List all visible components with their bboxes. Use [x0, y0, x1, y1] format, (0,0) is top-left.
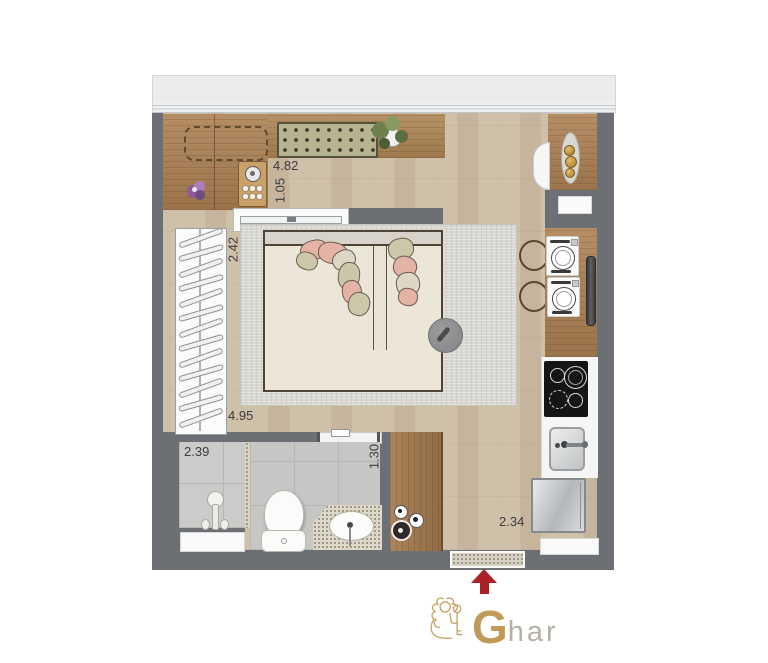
wall-grab-bar: [586, 256, 596, 326]
sliding-partition-handle: [287, 217, 296, 222]
bread-roll: [565, 168, 575, 178]
wall-bathroom-left: [163, 442, 179, 550]
window-facade: [152, 75, 616, 105]
place-setting: [547, 277, 580, 317]
wardrobe-closet: [175, 228, 227, 435]
toilet-button: [281, 538, 287, 544]
wall-right: [597, 113, 614, 570]
bread-roll: [564, 145, 575, 156]
vanity-faucet-stem: [349, 527, 351, 546]
tufted-bench: [277, 122, 378, 158]
bed-headboard: [265, 232, 441, 246]
bread-roll: [565, 156, 577, 168]
sink-drain: [555, 443, 560, 448]
shaft-niche: [558, 196, 592, 214]
fold-table-outline: [184, 126, 268, 161]
dimension-label: 1.30: [367, 440, 382, 474]
coffee-machine-dial-dot: [250, 171, 255, 176]
orchid-plant: [186, 180, 208, 202]
place-setting: [546, 236, 579, 276]
kitchen-sink: [549, 427, 585, 471]
entry-doormat: [450, 551, 525, 568]
dimension-label: 1.05: [273, 176, 288, 206]
wall-left: [152, 113, 163, 570]
lion-key-logo-icon: [424, 593, 470, 648]
sink-faucet-cap: [582, 441, 588, 448]
coffee-pods: [242, 185, 263, 201]
door-jamb-left: [317, 432, 320, 442]
wall-fold-panel: [533, 142, 550, 190]
closet-hangers: [176, 229, 226, 434]
dimension-label: 4.82: [273, 158, 298, 173]
brand-logo: G har: [424, 590, 604, 650]
entry-niche: [540, 538, 599, 555]
shower-knob: [201, 519, 210, 530]
logo-text: har: [508, 618, 559, 647]
dimension-label: 4.95: [228, 408, 253, 423]
cooktop: [544, 361, 588, 417]
coffee-machine: [238, 161, 267, 207]
door-leaf-mark: [331, 429, 350, 437]
bathroom-window: [180, 532, 245, 552]
logo-initial: G: [472, 604, 508, 650]
dimension-label: 2.42: [226, 233, 241, 267]
potted-plant: [372, 116, 412, 156]
window-tracks: [152, 103, 616, 113]
dimension-label: 2.39: [184, 444, 209, 459]
refrigerator: [531, 478, 586, 533]
dimension-label: 2.34: [499, 514, 524, 529]
duvet-channel: [373, 246, 387, 350]
floorplan-canvas: 4.82 1.05 2.42 4.95 2.39 1.30 2.34 G har: [0, 0, 768, 663]
shower-knob: [220, 519, 229, 530]
shower-stem: [212, 504, 219, 530]
